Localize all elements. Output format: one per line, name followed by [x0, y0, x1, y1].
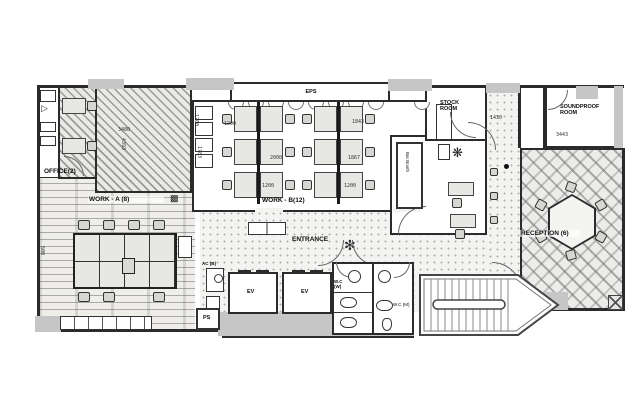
corridor-chair — [490, 216, 498, 224]
room-office-open — [95, 86, 192, 193]
toilet — [376, 300, 393, 311]
workstation-chair — [365, 180, 375, 190]
column-fill — [88, 79, 124, 89]
ev2-sill — [310, 270, 323, 273]
office-chair — [87, 141, 97, 151]
workstation-chair — [302, 180, 312, 190]
column-dot — [504, 164, 509, 169]
workstation-chair — [285, 147, 295, 157]
workstation-desk — [314, 139, 337, 165]
office-desk — [62, 98, 86, 114]
vent-triangle-icon: ▷ — [41, 104, 48, 113]
workstation-chair — [285, 180, 295, 190]
column-fill — [388, 79, 432, 91]
workstation-desk — [314, 172, 337, 198]
workstation-desk — [234, 139, 257, 165]
workstation-chair — [222, 147, 232, 157]
stock-label: STOCK ROOM — [440, 100, 476, 112]
column-fill — [186, 78, 234, 90]
urinal — [382, 318, 392, 331]
workstation-desk — [260, 106, 283, 132]
workstation-chair — [302, 147, 312, 157]
lounge-desk — [450, 214, 476, 228]
work-a-label: WORK - A (8) — [88, 196, 164, 203]
stall-wall — [334, 312, 372, 313]
dimension: 1200 — [344, 184, 356, 189]
toilet — [340, 317, 357, 328]
workstation-desk — [340, 139, 363, 165]
ac-label: AC (B) — [202, 262, 226, 267]
work-b-label: WORK - B(12) — [262, 197, 348, 204]
work-a-chair — [103, 292, 115, 302]
workstation-chair — [302, 114, 312, 124]
office-chair — [87, 101, 97, 111]
shelf — [40, 136, 56, 146]
wc-m-label: W.C (M) — [393, 303, 413, 308]
grille-square — [608, 295, 623, 310]
workstation-desk — [260, 139, 283, 165]
ev1-label: EV — [247, 289, 261, 295]
dimension: 2000 — [270, 156, 282, 161]
bar-booth-label: Bar Booth — [404, 152, 409, 200]
dimension: 1200 — [262, 184, 274, 189]
side-cabinet — [178, 236, 192, 258]
wall-soundproof-left — [543, 86, 546, 148]
wall-corridor-left — [518, 86, 521, 148]
toilet — [340, 297, 357, 308]
shelf — [40, 122, 56, 132]
corridor-chair — [490, 192, 498, 200]
copier — [122, 258, 135, 274]
reception-label: RECEPTION (6) — [520, 230, 580, 237]
dimension: 1783 — [196, 146, 201, 158]
door-gap — [255, 208, 283, 212]
workstation-chair — [222, 180, 232, 190]
workstation-desk — [314, 106, 337, 132]
ev1-sill — [256, 270, 269, 273]
cabinet — [438, 144, 450, 160]
workstation-chair — [365, 114, 375, 124]
dimension: 600 — [39, 246, 44, 255]
shelf — [40, 90, 56, 102]
eps-label: EPS — [300, 89, 322, 95]
stall-wall — [334, 292, 372, 293]
dimension: 3443 — [556, 133, 568, 138]
ac-unit — [214, 274, 223, 283]
wc-w-label: W.C (W) — [334, 280, 350, 290]
work-a-chair — [78, 220, 90, 230]
column-fill — [486, 83, 520, 93]
column-fill — [576, 86, 598, 99]
column-fill — [614, 86, 623, 148]
staircase — [415, 268, 565, 343]
dimension: 1430 — [490, 116, 502, 121]
dimension: 1200 — [224, 122, 236, 127]
ev1-sill — [238, 270, 251, 273]
workstation-desk — [234, 106, 257, 132]
work-a-chair — [153, 220, 165, 230]
workstation-chair — [365, 147, 375, 157]
wall-right-reception — [622, 148, 625, 311]
dimension: 1200 — [193, 114, 198, 126]
dimension: 1867 — [348, 156, 360, 161]
office-desk — [62, 138, 86, 154]
ev2-label: EV — [301, 289, 315, 295]
office-label: OFFICE(2) — [44, 168, 100, 175]
bench — [248, 222, 286, 235]
lounge-chair — [452, 198, 462, 208]
work-a-chair — [78, 292, 90, 302]
soundproof-label: SOUNDPROOF ROOM — [560, 104, 612, 116]
lounge-desk — [448, 182, 474, 196]
ev2-sill — [292, 270, 305, 273]
work-a-chair — [153, 292, 165, 302]
lounge-chair — [455, 229, 465, 239]
ps-label: PS — [203, 315, 217, 321]
sink — [348, 270, 361, 283]
work-a-chair — [103, 220, 115, 230]
sink — [378, 270, 391, 283]
corridor-chair — [490, 168, 498, 176]
plant-icon: ❋ — [452, 146, 463, 159]
dimension: 4393 — [120, 138, 125, 150]
workstation-chair — [285, 114, 295, 124]
dimension: 3480 — [118, 128, 130, 133]
dimension: 1843 — [352, 120, 364, 125]
floor-plan: ▷ OFFICE(2) EPS ✸ — [0, 0, 640, 415]
workstation-desk — [234, 172, 257, 198]
column-fill — [35, 316, 61, 332]
locker-bank — [60, 316, 152, 330]
work-a-chair — [128, 220, 140, 230]
cart-icon: ▩ — [170, 194, 179, 203]
